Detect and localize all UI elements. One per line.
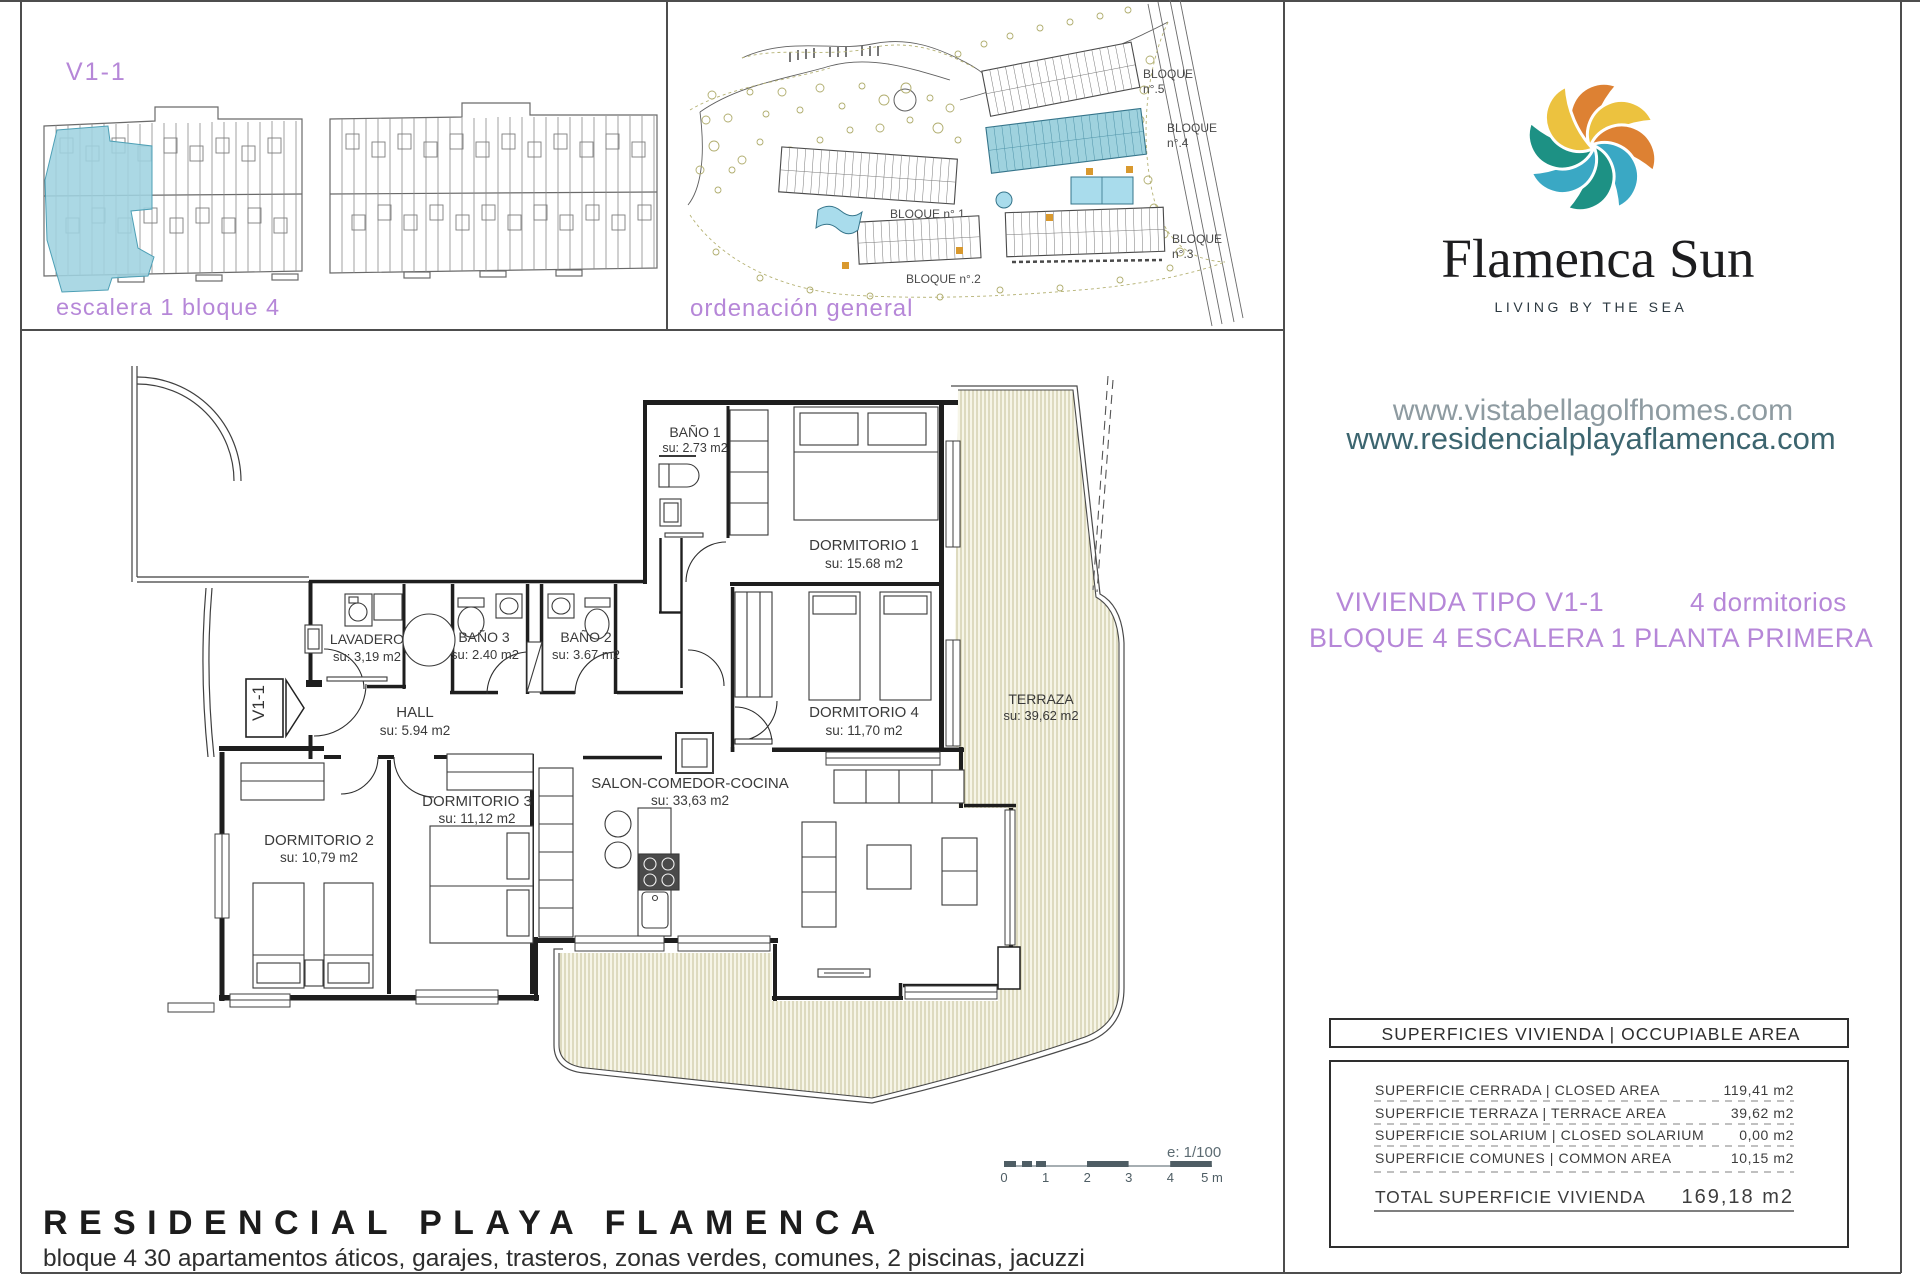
svg-text:SUPERFICIE SOLARIUM | CLOSED: SUPERFICIE SOLARIUM | CLOSED SOLARIUM xyxy=(1375,1127,1704,1143)
svg-text:V1-1: V1-1 xyxy=(249,685,268,721)
svg-text:4: 4 xyxy=(1167,1170,1174,1185)
svg-text:TERRAZA: TERRAZA xyxy=(1008,691,1074,707)
svg-text:su: 3,19 m2: su: 3,19 m2 xyxy=(333,649,401,664)
svg-text:10,15 m2: 10,15 m2 xyxy=(1731,1150,1794,1166)
svg-text:BLOQUE: BLOQUE xyxy=(1143,67,1193,81)
svg-text:LAVADERO: LAVADERO xyxy=(330,631,404,647)
svg-text:SUPERFICIE TERRAZA | TERRA: SUPERFICIE TERRAZA | TERRACE AREA xyxy=(1375,1105,1666,1121)
svg-text:su: 15.68 m2: su: 15.68 m2 xyxy=(825,556,903,571)
svg-text:su: 10,79 m2: su: 10,79 m2 xyxy=(280,850,358,865)
svg-text:n°.4: n°.4 xyxy=(1167,136,1189,150)
svg-text:VIVIENDA TIPO V1-1: VIVIENDA TIPO V1-1 xyxy=(1336,587,1604,617)
svg-text:0,00 m2: 0,00 m2 xyxy=(1739,1127,1794,1143)
svg-text:HALL: HALL xyxy=(396,704,434,721)
svg-text:SUPERFICIES VIVIENDA | OCCUPIA: SUPERFICIES VIVIENDA | OCCUPIABLE AREA xyxy=(1382,1024,1801,1044)
svg-text:2: 2 xyxy=(1084,1170,1091,1185)
svg-text:SUPERFICIE COMUNES | COMMON: SUPERFICIE COMUNES | COMMON AREA xyxy=(1375,1150,1672,1166)
svg-text:DORMITORIO 1: DORMITORIO 1 xyxy=(809,537,919,554)
svg-text:BAÑO 3: BAÑO 3 xyxy=(458,629,510,645)
svg-text:n°.5: n°.5 xyxy=(1143,82,1165,96)
svg-text:DORMITORIO 2: DORMITORIO 2 xyxy=(264,832,374,849)
svg-text:TOTAL SUPERFICIE VIVIENDA: TOTAL SUPERFICIE VIVIENDA xyxy=(1375,1187,1646,1207)
svg-text:169,18 m2: 169,18 m2 xyxy=(1681,1186,1794,1208)
svg-text:V1-1: V1-1 xyxy=(66,58,127,86)
svg-text:SALON-COMEDOR-COCINA: SALON-COMEDOR-COCINA xyxy=(591,775,789,792)
svg-text:SUPERFICIE CERRADA | CLOSED: SUPERFICIE CERRADA | CLOSED AREA xyxy=(1375,1082,1660,1098)
svg-text:bloque 4 30 apartamentos ático: bloque 4 30 apartamentos áticos, garajes… xyxy=(43,1245,1085,1272)
svg-text:su: 11,12 m2: su: 11,12 m2 xyxy=(438,811,515,826)
svg-text:LIVING BY THE SEA: LIVING BY THE SEA xyxy=(1495,299,1688,315)
svg-text:DORMITORIO 3: DORMITORIO 3 xyxy=(422,793,532,810)
svg-text:su: 3.67 m2: su: 3.67 m2 xyxy=(552,647,620,662)
svg-text:su: 2.73 m2: su: 2.73 m2 xyxy=(662,441,727,455)
svg-text:Flamenca Sun: Flamenca Sun xyxy=(1441,228,1754,289)
svg-text:su: 11,70 m2: su: 11,70 m2 xyxy=(825,723,902,738)
svg-text:1: 1 xyxy=(1042,1170,1049,1185)
svg-text:BLOQUE n°.2: BLOQUE n°.2 xyxy=(906,272,981,286)
svg-text:n°.3: n°.3 xyxy=(1172,247,1194,261)
svg-text:DORMITORIO 4: DORMITORIO 4 xyxy=(809,704,919,721)
svg-text:su: 2.40 m2: su: 2.40 m2 xyxy=(451,647,519,662)
svg-text:BLOQUE: BLOQUE xyxy=(1167,121,1217,135)
svg-text:5 m: 5 m xyxy=(1201,1170,1223,1185)
svg-text:4 dormitorios: 4 dormitorios xyxy=(1690,587,1847,617)
svg-text:su: 39,62 m2: su: 39,62 m2 xyxy=(1003,708,1078,723)
svg-text:119,41 m2: 119,41 m2 xyxy=(1723,1082,1794,1098)
svg-text:su: 33,63 m2: su: 33,63 m2 xyxy=(651,793,729,808)
svg-text:BLOQUE: BLOQUE xyxy=(1172,232,1222,246)
svg-text:BAÑO 1: BAÑO 1 xyxy=(669,424,721,440)
svg-text:e: 1/100: e: 1/100 xyxy=(1167,1144,1221,1161)
svg-text:39,62 m2: 39,62 m2 xyxy=(1731,1105,1794,1121)
svg-text:ordenación general: ordenación general xyxy=(690,295,914,322)
svg-text:RESIDENCIAL PLAYA FLAMENCA: RESIDENCIAL PLAYA FLAMENCA xyxy=(43,1204,887,1242)
svg-text:3: 3 xyxy=(1125,1170,1132,1185)
svg-text:escalera 1 bloque 4: escalera 1 bloque 4 xyxy=(56,294,280,320)
svg-text:0: 0 xyxy=(1000,1170,1007,1185)
svg-text:www.residencialplayaflamenca.c: www.residencialplayaflamenca.com xyxy=(1345,421,1835,456)
svg-text:BLOQUE 4 ESCALERA 1 PLANTA P: BLOQUE 4 ESCALERA 1 PLANTA PRIMERA xyxy=(1309,623,1873,653)
svg-text:su: 5.94 m2: su: 5.94 m2 xyxy=(380,723,451,738)
svg-text:BAÑO 2: BAÑO 2 xyxy=(560,629,612,645)
